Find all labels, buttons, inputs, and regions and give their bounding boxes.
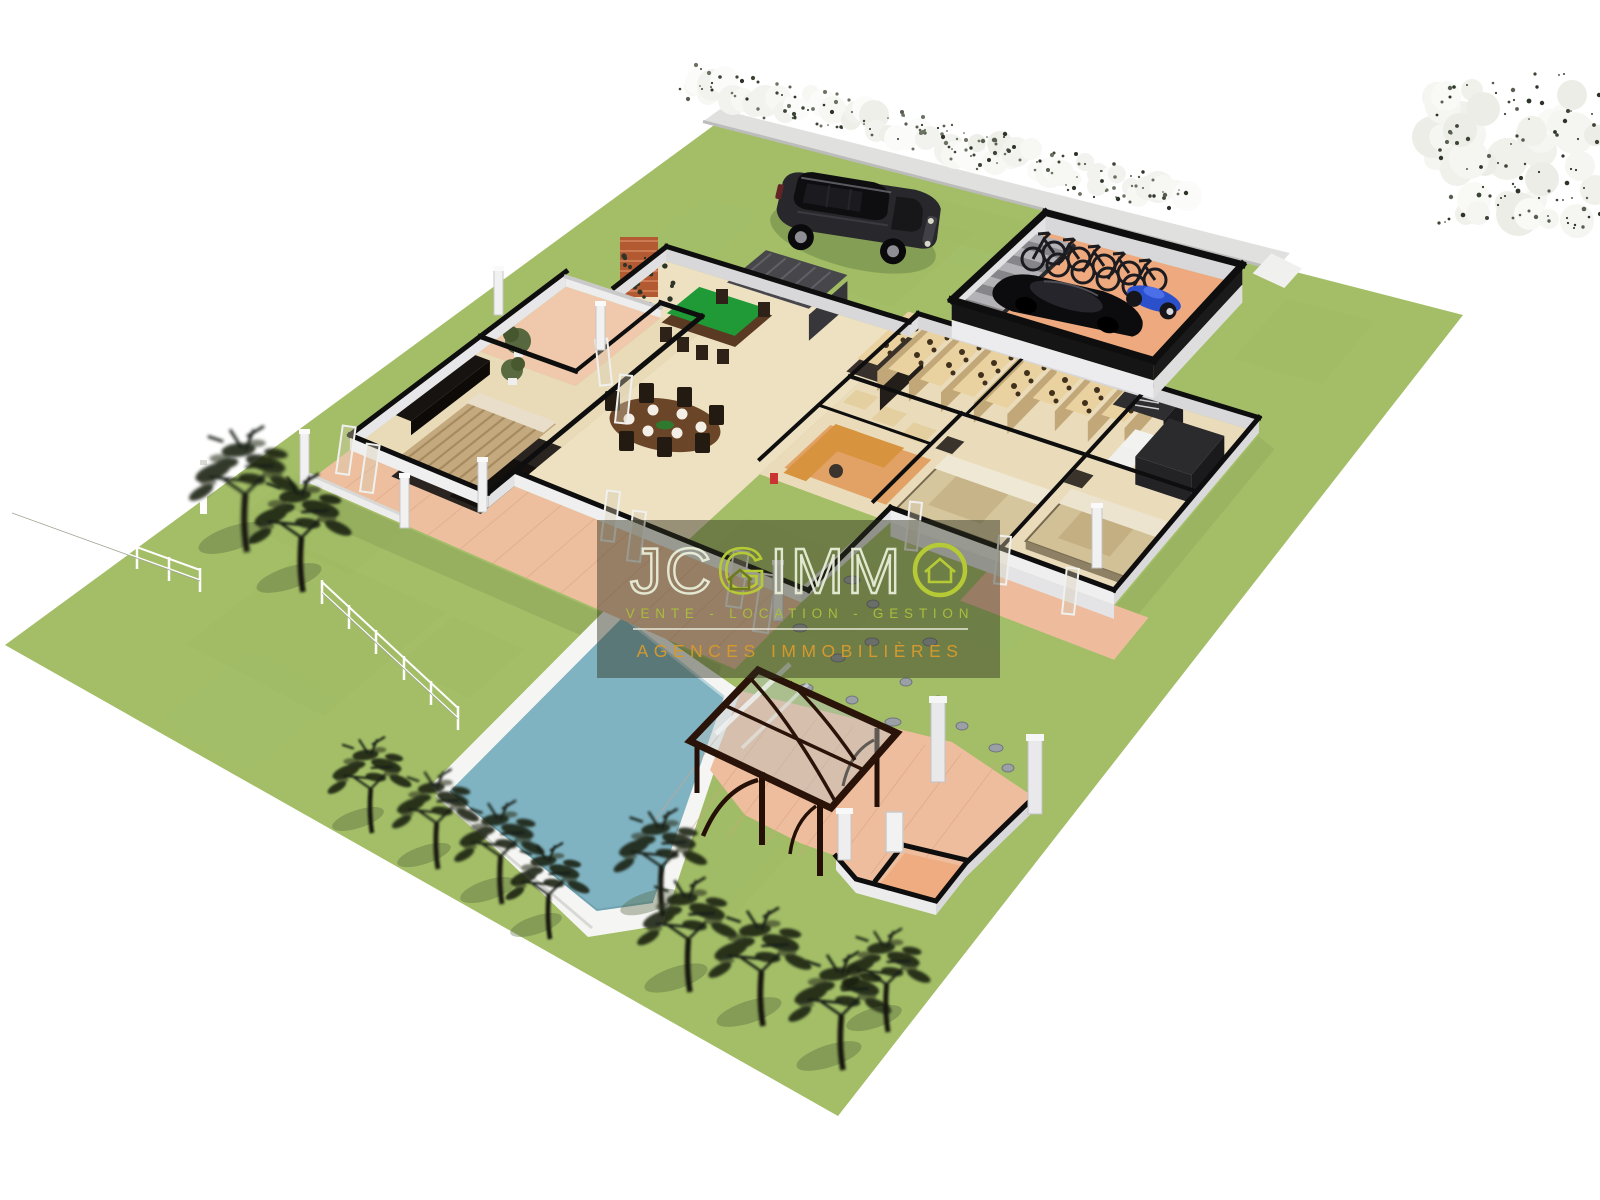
- svg-text:G: G: [717, 535, 770, 607]
- svg-text:VENTE - LOCATION - GESTION: VENTE - LOCATION - GESTION: [626, 606, 975, 621]
- svg-text:IMM: IMM: [770, 535, 903, 607]
- svg-text:JC: JC: [630, 535, 714, 607]
- svg-text:AGENCES IMMOBILIÈRES: AGENCES IMMOBILIÈRES: [637, 641, 964, 661]
